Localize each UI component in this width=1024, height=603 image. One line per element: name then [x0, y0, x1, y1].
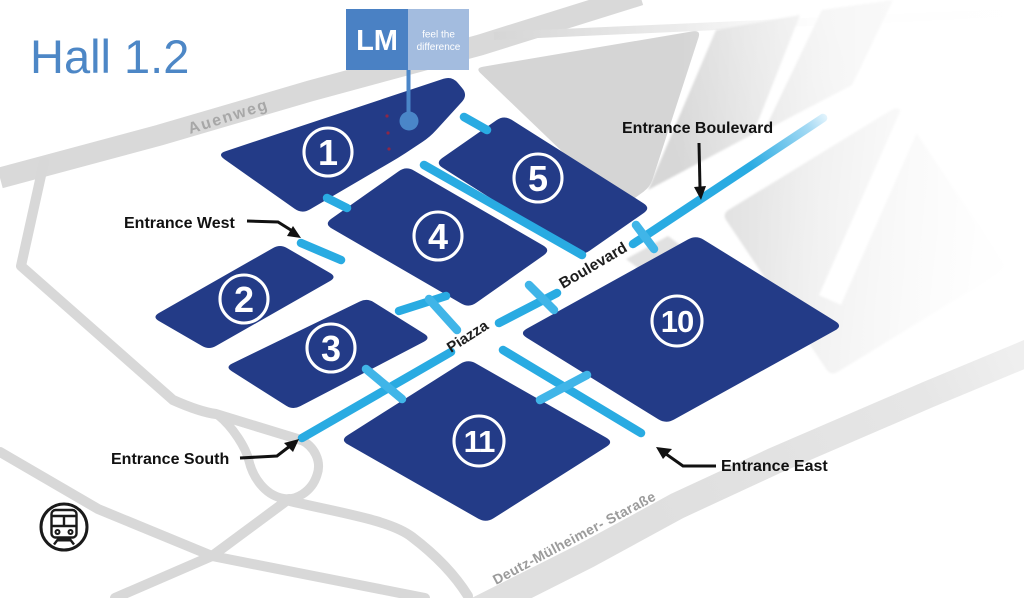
svg-text:10: 10: [661, 304, 693, 339]
svg-text:Entrance South: Entrance South: [111, 451, 229, 468]
svg-text:difference: difference: [417, 42, 461, 53]
svg-text:5: 5: [528, 158, 548, 199]
svg-text:Hall 1.2: Hall 1.2: [30, 30, 189, 83]
svg-text:1: 1: [318, 132, 338, 173]
svg-text:LM: LM: [356, 25, 398, 57]
svg-text:Entrance West: Entrance West: [124, 215, 236, 232]
svg-text:Entrance Boulevard: Entrance Boulevard: [622, 120, 773, 137]
svg-text:3: 3: [321, 328, 341, 369]
svg-text:feel the: feel the: [422, 30, 455, 41]
svg-text:4: 4: [428, 216, 448, 257]
svg-text:Entrance East: Entrance East: [721, 458, 828, 475]
svg-text:11: 11: [464, 424, 496, 459]
svg-text:2: 2: [234, 279, 254, 320]
